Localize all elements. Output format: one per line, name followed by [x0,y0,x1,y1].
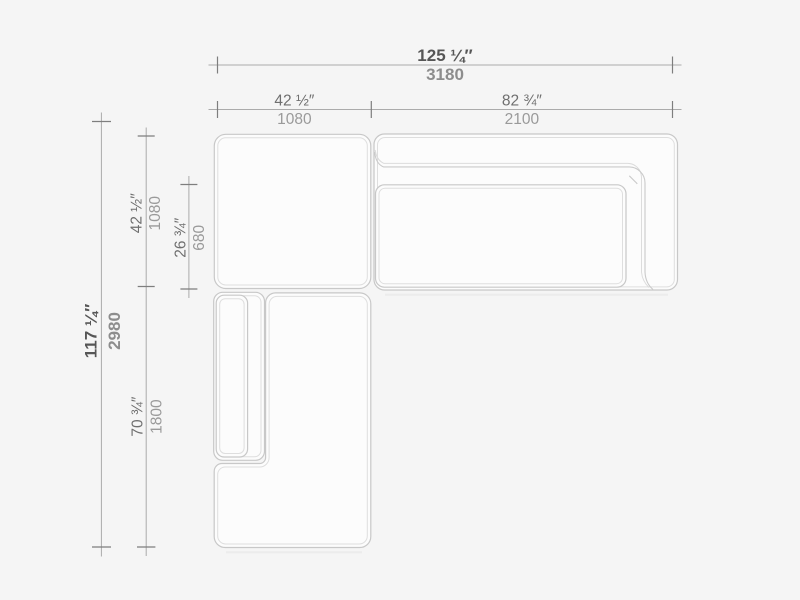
svg-text:70 ¾″: 70 ¾″ [130,396,147,436]
svg-text:117 ¼″: 117 ¼″ [81,304,100,358]
svg-text:2980: 2980 [105,312,124,350]
svg-text:680: 680 [191,224,208,250]
svg-text:82 ¾″: 82 ¾″ [502,93,542,110]
svg-text:3180: 3180 [426,65,464,84]
svg-text:2100: 2100 [505,111,540,128]
svg-text:1800: 1800 [149,399,166,434]
svg-text:1080: 1080 [147,196,164,231]
svg-text:42 ½″: 42 ½″ [129,193,146,233]
svg-text:1080: 1080 [277,111,312,128]
svg-text:125 ¼″: 125 ¼″ [417,46,472,65]
svg-text:26 ¾″: 26 ¾″ [172,217,189,257]
svg-text:42 ½″: 42 ½″ [274,93,314,110]
